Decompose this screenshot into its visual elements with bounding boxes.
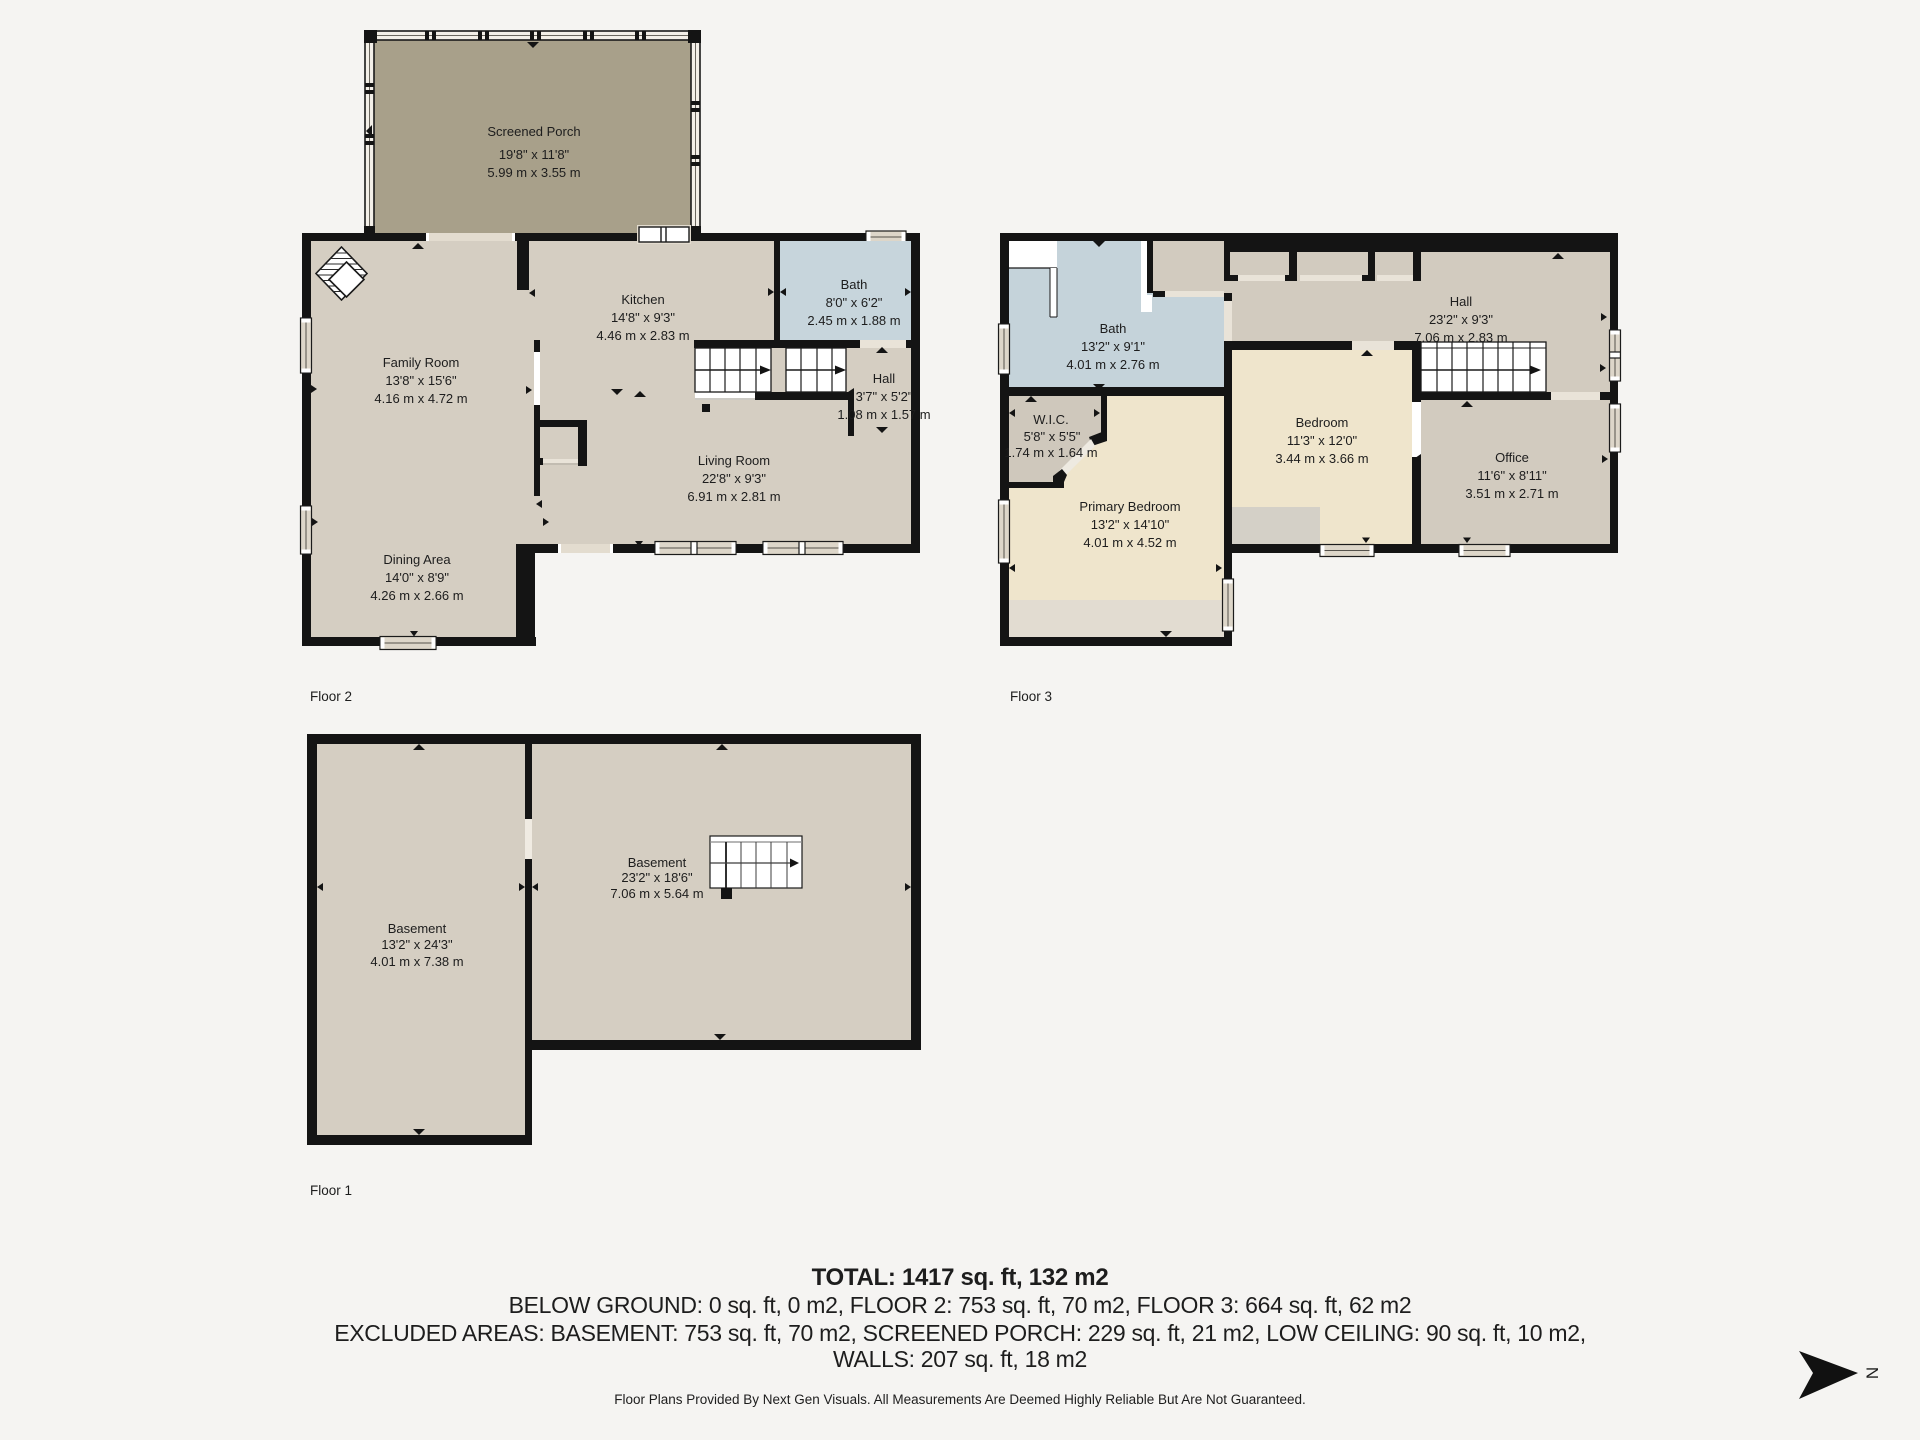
svg-text:8'0" x 6'2": 8'0" x 6'2" — [826, 295, 883, 310]
svg-text:7.06 m x 5.64 m: 7.06 m x 5.64 m — [610, 886, 703, 901]
svg-text:W.I.C.: W.I.C. — [1033, 412, 1068, 427]
svg-text:5.99 m x 3.55 m: 5.99 m x 3.55 m — [487, 165, 580, 180]
svg-text:13'8" x 15'6": 13'8" x 15'6" — [385, 373, 457, 388]
svg-text:TOTAL: 1417 sq. ft, 132 m2: TOTAL: 1417 sq. ft, 132 m2 — [812, 1264, 1109, 1291]
svg-text:Bath: Bath — [1100, 321, 1127, 336]
svg-text:11'3" x 12'0": 11'3" x 12'0" — [1287, 433, 1358, 448]
svg-text:Living Room: Living Room — [698, 453, 770, 468]
svg-text:Floor 1: Floor 1 — [310, 1183, 352, 1198]
svg-text:4.01 m x 4.52 m: 4.01 m x 4.52 m — [1083, 535, 1176, 550]
svg-text:13'2" x 24'3": 13'2" x 24'3" — [381, 937, 453, 952]
svg-text:N: N — [1863, 1367, 1882, 1379]
svg-text:2.45 m x 1.88 m: 2.45 m x 1.88 m — [807, 313, 900, 328]
svg-text:14'8" x 9'3": 14'8" x 9'3" — [611, 310, 675, 325]
svg-text:BELOW GROUND: 0 sq. ft, 0 m2,: BELOW GROUND: 0 sq. ft, 0 m2, FLOOR 2: 7… — [509, 1292, 1412, 1318]
svg-text:3'7" x 5'2": 3'7" x 5'2" — [856, 389, 913, 404]
svg-text:Basement: Basement — [628, 855, 687, 870]
svg-text:Hall: Hall — [873, 371, 896, 386]
svg-text:4.16 m x 4.72 m: 4.16 m x 4.72 m — [374, 391, 467, 406]
svg-text:Screened Porch: Screened Porch — [487, 124, 580, 139]
svg-text:Kitchen: Kitchen — [621, 292, 664, 307]
svg-text:4.26 m x 2.66 m: 4.26 m x 2.66 m — [370, 588, 463, 603]
svg-text:Bath: Bath — [841, 277, 868, 292]
svg-text:Floor 2: Floor 2 — [310, 689, 352, 704]
svg-text:4.01 m x 7.38 m: 4.01 m x 7.38 m — [370, 954, 463, 969]
svg-text:Dining Area: Dining Area — [383, 552, 451, 567]
svg-text:Primary Bedroom: Primary Bedroom — [1079, 499, 1180, 514]
svg-text:3.44 m x 3.66 m: 3.44 m x 3.66 m — [1275, 451, 1368, 466]
svg-text:4.46 m x 2.83 m: 4.46 m x 2.83 m — [596, 328, 689, 343]
svg-text:Family Room: Family Room — [383, 355, 460, 370]
svg-text:Floor 3: Floor 3 — [1010, 689, 1052, 704]
svg-text:Bedroom: Bedroom — [1296, 415, 1349, 430]
svg-text:Office: Office — [1495, 450, 1529, 465]
svg-text:4.01 m x 2.76 m: 4.01 m x 2.76 m — [1066, 357, 1159, 372]
svg-text:5'8" x 5'5": 5'8" x 5'5" — [1024, 429, 1081, 444]
svg-text:11'6" x 8'11": 11'6" x 8'11" — [1477, 468, 1547, 483]
svg-text:1.74 m x 1.64 m: 1.74 m x 1.64 m — [1004, 445, 1097, 460]
svg-text:6.91 m x 2.81 m: 6.91 m x 2.81 m — [687, 489, 780, 504]
svg-text:1.08 m x 1.57 m: 1.08 m x 1.57 m — [837, 407, 930, 422]
svg-text:22'8" x 9'3": 22'8" x 9'3" — [702, 471, 766, 486]
svg-text:Floor Plans Provided By Next G: Floor Plans Provided By Next Gen Visuals… — [614, 1392, 1306, 1407]
svg-text:13'2" x 14'10": 13'2" x 14'10" — [1091, 517, 1170, 532]
svg-text:Hall: Hall — [1450, 294, 1473, 309]
svg-text:14'0" x 8'9": 14'0" x 8'9" — [385, 570, 449, 585]
svg-text:19'8" x 11'8": 19'8" x 11'8" — [499, 147, 570, 162]
svg-text:23'2" x 9'3": 23'2" x 9'3" — [1429, 312, 1493, 327]
svg-text:WALLS: 207 sq. ft, 18 m2: WALLS: 207 sq. ft, 18 m2 — [833, 1346, 1087, 1372]
svg-text:EXCLUDED AREAS: BASEMENT: 753: EXCLUDED AREAS: BASEMENT: 753 sq. ft, 70… — [334, 1320, 1586, 1346]
svg-text:7.06 m x 2.83 m: 7.06 m x 2.83 m — [1414, 330, 1507, 345]
svg-text:Basement: Basement — [388, 921, 447, 936]
svg-text:13'2" x 9'1": 13'2" x 9'1" — [1081, 339, 1145, 354]
svg-text:3.51 m x 2.71 m: 3.51 m x 2.71 m — [1465, 486, 1558, 501]
svg-text:23'2" x 18'6": 23'2" x 18'6" — [621, 870, 693, 885]
